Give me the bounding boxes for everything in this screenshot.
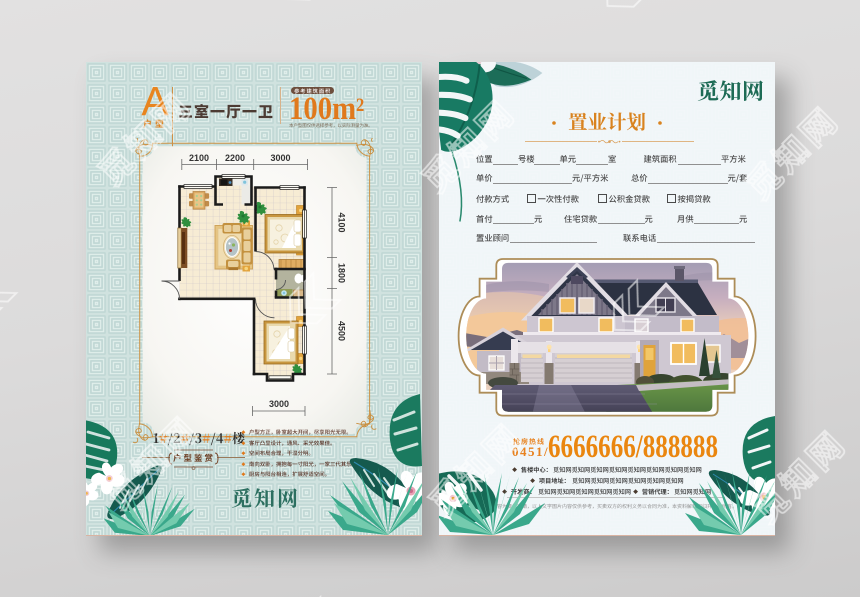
svg-text:4100: 4100 [337, 212, 347, 232]
svg-text:2200: 2200 [225, 153, 245, 163]
svg-text:4500: 4500 [337, 321, 347, 341]
svg-text:1800: 1800 [337, 263, 347, 283]
svg-text:3000: 3000 [270, 153, 290, 163]
svg-text:3000: 3000 [269, 399, 289, 409]
svg-text:2100: 2100 [189, 153, 209, 163]
